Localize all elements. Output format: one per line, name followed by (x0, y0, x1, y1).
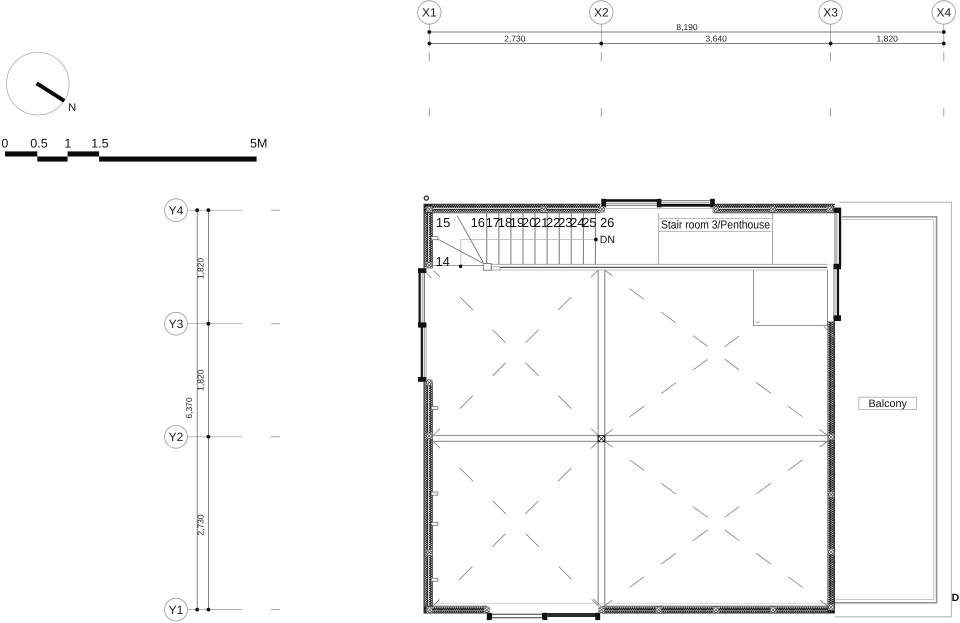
svg-text:14: 14 (435, 254, 449, 269)
svg-text:Y4: Y4 (169, 203, 184, 217)
svg-text:Y3: Y3 (169, 317, 184, 331)
svg-text:Stair room 3/Penthouse: Stair room 3/Penthouse (661, 219, 770, 232)
svg-text:3,640: 3,640 (706, 33, 728, 43)
svg-text:2,730: 2,730 (504, 33, 526, 43)
svg-text:X2: X2 (594, 6, 609, 20)
svg-text:X1: X1 (422, 6, 437, 20)
svg-text:Balcony: Balcony (868, 398, 907, 410)
svg-text:0.5: 0.5 (30, 137, 47, 151)
svg-text:8,190: 8,190 (676, 22, 698, 32)
svg-text:N: N (68, 102, 76, 114)
svg-text:1.5: 1.5 (91, 137, 108, 151)
svg-text:1: 1 (64, 137, 71, 151)
svg-text:16: 16 (471, 215, 485, 230)
svg-text:6,370: 6,370 (184, 397, 194, 419)
svg-text:1,820: 1,820 (196, 258, 206, 280)
svg-text:X4: X4 (936, 6, 951, 20)
svg-text:5M: 5M (250, 137, 267, 151)
svg-text:25: 25 (582, 215, 596, 230)
svg-text:1,820: 1,820 (196, 369, 206, 391)
svg-text:X3: X3 (823, 6, 838, 20)
svg-text:2,730: 2,730 (196, 514, 206, 536)
svg-text:15: 15 (436, 215, 450, 230)
svg-text:Y1: Y1 (169, 603, 184, 617)
svg-text:1,820: 1,820 (877, 33, 899, 43)
svg-text:D: D (952, 592, 960, 604)
svg-text:Y2: Y2 (169, 430, 184, 444)
svg-text:DN: DN (600, 234, 615, 246)
svg-text:26: 26 (600, 215, 614, 230)
svg-text:0: 0 (1, 137, 8, 151)
